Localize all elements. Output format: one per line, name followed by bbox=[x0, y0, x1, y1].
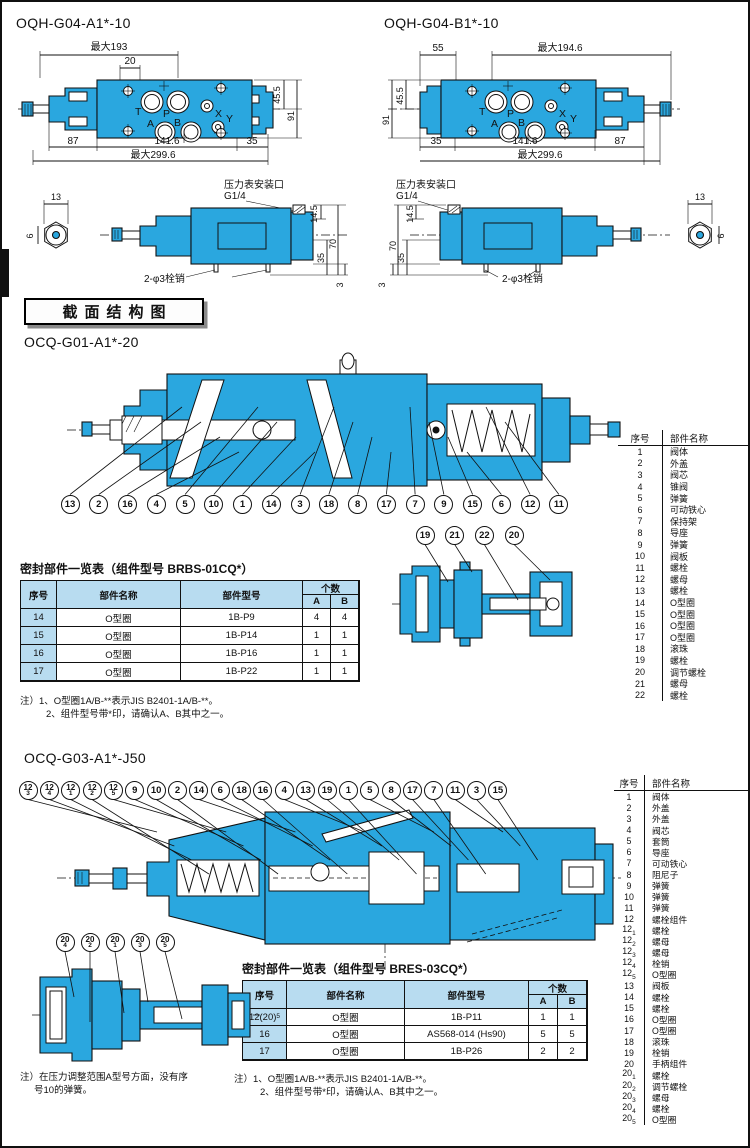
leader-line bbox=[242, 800, 330, 861]
callout-18: 18 bbox=[232, 781, 251, 800]
callout-3: 3 bbox=[291, 495, 310, 514]
parts-row: 14螺栓 bbox=[614, 992, 750, 1003]
model-title-ocq-g03: OCQ-G03-A1*-J50 bbox=[24, 750, 146, 766]
seal-table-g01: 序号部件名称部件型号个数AB14O型圈1B-P94415O型圈1B-P14111… bbox=[20, 580, 360, 682]
parts-row: 10阀板 bbox=[618, 550, 750, 562]
leader-line bbox=[300, 407, 334, 495]
leader-line bbox=[486, 407, 530, 495]
note-line-2: 2、组件型号带*印，请确认A、B其中之一。 bbox=[234, 1087, 443, 1100]
gauge-thread-label: G1/4 bbox=[396, 191, 418, 202]
col-header-qty: 个数 bbox=[303, 581, 359, 595]
leader-line bbox=[514, 545, 550, 581]
callout-8: 8 bbox=[382, 781, 401, 800]
dim-right-outer: 91 bbox=[286, 111, 296, 121]
seal-row-qty-a: 1 bbox=[303, 645, 331, 663]
col-header-qty-b: B bbox=[331, 595, 359, 609]
parts-row: 1阀体 bbox=[618, 446, 750, 458]
dim-top-left: 55 bbox=[432, 43, 444, 54]
dim-total-height: 70 bbox=[328, 239, 338, 249]
callout-12: 12 bbox=[521, 495, 540, 514]
parts-row: 17O型圈 bbox=[614, 1025, 750, 1036]
dim-hex-across: 6 bbox=[25, 233, 35, 238]
parts-row: 2外盖 bbox=[618, 458, 750, 470]
parts-table-header: 序号部件名称 bbox=[614, 775, 750, 791]
callout-11: 11 bbox=[549, 495, 568, 514]
callout-15: 15 bbox=[463, 495, 482, 514]
dim-bot-right: 35 bbox=[246, 136, 258, 147]
leader-line bbox=[140, 952, 148, 1003]
callout-18: 18 bbox=[319, 495, 338, 514]
parts-row: 4阀芯 bbox=[614, 824, 750, 835]
seal-row-name: O型圈 bbox=[57, 627, 181, 645]
parts-table-g03: 序号部件名称1阀体2外盖3外盖4阀芯5套筒6导座7可动铁心8阻尼子9弹簧10弹簧… bbox=[614, 775, 750, 1125]
port-label-x: X bbox=[215, 108, 222, 120]
seal-row-qty-b: 1 bbox=[331, 645, 359, 663]
parts-row: 2外盖 bbox=[614, 802, 750, 813]
parts-row: 16O型圈 bbox=[618, 620, 750, 632]
port-label-t: T bbox=[479, 106, 486, 118]
callout-4: 4 bbox=[275, 781, 294, 800]
parts-row: 3阀芯 bbox=[618, 469, 750, 481]
seal-row-no: 16 bbox=[21, 645, 57, 663]
port-label-p: P bbox=[507, 108, 514, 120]
dim-base-height: 3 bbox=[377, 282, 387, 287]
hex-end-view: 13 6 bbox=[688, 192, 726, 248]
port-label-t: T bbox=[135, 106, 142, 118]
gauge-port-label: 压力表安装口 bbox=[396, 178, 456, 191]
dim-hex-width: 13 bbox=[51, 192, 61, 202]
pin-label: 2-φ3栓销 bbox=[502, 272, 543, 285]
callout-14: 14 bbox=[189, 781, 208, 800]
pin-label: 2-φ3栓销 bbox=[144, 272, 185, 285]
callout-20-1: 201 bbox=[106, 933, 125, 952]
parts-row: 9弹簧 bbox=[614, 880, 750, 891]
port-label-y: Y bbox=[570, 113, 577, 125]
callout-12-3: 123 bbox=[19, 781, 38, 800]
callout-20-3: 203 bbox=[131, 933, 150, 952]
valve-body-side-right bbox=[410, 205, 670, 272]
leader-line bbox=[135, 800, 244, 847]
col-header-model: 部件型号 bbox=[181, 581, 303, 609]
seal-row-name: O型圈 bbox=[57, 663, 181, 681]
col-header-no: 序号 bbox=[21, 581, 57, 609]
seal-row-qty-a: 4 bbox=[303, 609, 331, 627]
leader-line bbox=[348, 800, 416, 875]
dim-bot-max: 最大299.6 bbox=[130, 148, 175, 161]
callout-1: 1 bbox=[233, 495, 252, 514]
parts-row: 9弹簧 bbox=[618, 539, 750, 551]
parts-row: 7保持架 bbox=[618, 516, 750, 528]
parts-row: 7可动铁心 bbox=[614, 858, 750, 869]
leader-line bbox=[178, 800, 279, 875]
leader-line bbox=[455, 800, 503, 833]
gauge-port-label: 压力表安装口 bbox=[224, 178, 284, 191]
callout-17: 17 bbox=[377, 495, 396, 514]
seal-row-qty-b: 4 bbox=[331, 609, 359, 627]
port-label-y: Y bbox=[226, 113, 233, 125]
callout-12-1: 121 bbox=[61, 781, 80, 800]
dim-bot-left: 87 bbox=[67, 136, 79, 147]
leader-line bbox=[477, 800, 521, 847]
leader-line bbox=[484, 545, 518, 601]
catalog-page: OQH-G04-A1*-10 OQH-G04-B1*-10 T P X bbox=[0, 0, 750, 1148]
seal-row-no: 14 bbox=[21, 609, 57, 627]
seal-row-name: O型圈 bbox=[57, 645, 181, 663]
parts-row: 1阀体 bbox=[614, 791, 750, 802]
leader-line bbox=[370, 800, 434, 833]
callout-4: 4 bbox=[147, 495, 166, 514]
callout-7: 7 bbox=[406, 495, 425, 514]
leader-line bbox=[434, 800, 486, 875]
parts-row: 15O型圈 bbox=[618, 608, 750, 620]
leader-line bbox=[448, 437, 473, 495]
leader-line bbox=[65, 952, 74, 998]
leader-line bbox=[156, 800, 261, 861]
callout-20-2: 202 bbox=[81, 933, 100, 952]
dim-port-height: 14.5 bbox=[405, 205, 415, 223]
spring-note-line-1: 注）在压力调整范围A型号方面，没有序 bbox=[20, 1072, 235, 1085]
callout-6: 6 bbox=[211, 781, 230, 800]
dim-hex-across: 6 bbox=[716, 233, 726, 238]
model-title-ocq-g01: OCQ-G01-A1*-20 bbox=[24, 334, 139, 350]
callout-14: 14 bbox=[262, 495, 281, 514]
leader-line bbox=[70, 407, 182, 495]
dim-lower-height: 35 bbox=[316, 253, 326, 263]
col-header-qty-b: B bbox=[558, 995, 587, 1009]
col-header-name: 部件名称 bbox=[287, 981, 405, 1009]
parts-row: 19螺栓 bbox=[618, 655, 750, 667]
parts-row: 8阻尼子 bbox=[614, 869, 750, 880]
leader-line bbox=[386, 452, 391, 495]
parts-row: 12螺母 bbox=[618, 574, 750, 586]
drawing-side-view-right: 压力表安装口 G1/4 13 6 bbox=[380, 178, 740, 298]
note-line-2: 2、组件型号带*印，请确认A、B其中之一。 bbox=[20, 709, 229, 722]
callout-20-4: 204 bbox=[56, 933, 75, 952]
leader-line bbox=[214, 422, 277, 495]
dim-total-height: 70 bbox=[388, 241, 398, 251]
leader-line bbox=[92, 800, 209, 875]
note-line-1: 注）1、O型圈1A/B-**表示JIS B2401-1A/B-**。 bbox=[234, 1074, 443, 1087]
callout-10: 10 bbox=[204, 495, 223, 514]
dim-bot-max: 最大299.6 bbox=[517, 148, 562, 161]
seal-row-qty-a: 5 bbox=[529, 1026, 558, 1043]
dim-bot-right: 87 bbox=[614, 136, 626, 147]
dim-left-inner: 45.5 bbox=[395, 87, 405, 105]
callout-16: 16 bbox=[118, 495, 137, 514]
seal-row-model: 1B-P26 bbox=[405, 1043, 529, 1060]
dim-port-height: 14.5 bbox=[309, 205, 319, 223]
dim-base-height: 3 bbox=[335, 282, 345, 287]
seal-table-notes-g01: 注）1、O型圈1A/B-**表示JIS B2401-1A/B-**。 2、组件型… bbox=[20, 696, 229, 721]
parts-row: 14O型圈 bbox=[618, 597, 750, 609]
callout-2: 2 bbox=[168, 781, 187, 800]
callout-5: 5 bbox=[360, 781, 379, 800]
seal-row-model: 1B-P11 bbox=[405, 1009, 529, 1026]
section-banner: 截面结构图 bbox=[24, 298, 204, 325]
parts-row: 15螺栓 bbox=[614, 1003, 750, 1014]
callout-6: 6 bbox=[492, 495, 511, 514]
spring-note-line-2: 号10的弹簧。 bbox=[20, 1085, 235, 1098]
callout-11: 11 bbox=[446, 781, 465, 800]
dim-left-outer: 91 bbox=[381, 115, 391, 125]
leader-line bbox=[455, 545, 472, 573]
dim-top-max: 最大193 bbox=[91, 40, 128, 53]
callout-20: 20 bbox=[505, 526, 524, 545]
gauge-thread-label: G1/4 bbox=[224, 191, 246, 202]
parts-row: 125O型圈 bbox=[614, 969, 750, 980]
seal-row-model: 1B-P22 bbox=[181, 663, 303, 681]
port-label-b: B bbox=[174, 117, 181, 129]
hex-end-view: 13 6 bbox=[25, 192, 68, 248]
port-label-x: X bbox=[559, 108, 566, 120]
parts-row: 10弹簧 bbox=[614, 891, 750, 902]
page-edge-tab bbox=[2, 249, 9, 297]
callout-3: 3 bbox=[467, 781, 486, 800]
callout-19: 19 bbox=[318, 781, 337, 800]
seal-row-name: O型圈 bbox=[287, 1026, 405, 1043]
seal-row-qty-a: 1 bbox=[303, 627, 331, 645]
parts-table-header: 序号部件名称 bbox=[618, 430, 750, 446]
seal-row-qty-b: 2 bbox=[558, 1043, 587, 1060]
leader-line bbox=[185, 407, 258, 495]
port-label-a: A bbox=[147, 118, 154, 130]
leader-line bbox=[156, 452, 239, 495]
parts-row: 20调节螺栓 bbox=[618, 666, 750, 678]
callout-1: 1 bbox=[339, 781, 358, 800]
seal-row-qty-b: 1 bbox=[331, 663, 359, 681]
parts-row: 22螺栓 bbox=[618, 689, 750, 701]
callout-15: 15 bbox=[488, 781, 507, 800]
parts-row: 3外盖 bbox=[614, 813, 750, 824]
note-line-1: 注）1、O型圈1A/B-**表示JIS B2401-1A/B-**。 bbox=[20, 696, 229, 709]
subassembly-figure-g03: 204202201203205 bbox=[32, 927, 262, 1072]
seal-row-no: 15 bbox=[21, 627, 57, 645]
parts-row: 5弹簧 bbox=[618, 492, 750, 504]
parts-row: 6可动铁心 bbox=[618, 504, 750, 516]
callout-8: 8 bbox=[348, 495, 367, 514]
parts-row: 21螺母 bbox=[618, 678, 750, 690]
leader-line bbox=[425, 545, 448, 583]
dim-bot-mid: 141.6 bbox=[512, 136, 537, 147]
parts-row: 8导座 bbox=[618, 527, 750, 539]
callout-5: 5 bbox=[176, 495, 195, 514]
parts-row: 18滚珠 bbox=[614, 1036, 750, 1047]
seal-row-qty-b: 5 bbox=[558, 1026, 587, 1043]
leader-line bbox=[498, 800, 538, 861]
leader-line bbox=[329, 422, 353, 495]
callout-12-5: 125 bbox=[104, 781, 123, 800]
leader-line bbox=[429, 422, 444, 495]
drawing-side-view-left: 压力表安装口 G1/4 13 6 bbox=[16, 178, 362, 298]
leader-line bbox=[391, 800, 451, 847]
seal-table-title-g01: 密封部件一览表（组件型号 BRBS-01CQ*） bbox=[20, 560, 253, 577]
leader-line bbox=[115, 952, 124, 1014]
model-title-oqh-g04-a1: OQH-G04-A1*-10 bbox=[16, 15, 131, 31]
subassembly-figure-g01: 19212220 bbox=[390, 522, 575, 654]
callout-2: 2 bbox=[89, 495, 108, 514]
leader-line bbox=[165, 952, 182, 1020]
leader-lines-g01 bbox=[52, 352, 622, 516]
callout-13: 13 bbox=[61, 495, 80, 514]
parts-row: 17O型圈 bbox=[618, 632, 750, 644]
dim-bot-left: 35 bbox=[430, 136, 442, 147]
parts-row: 13阀板 bbox=[614, 980, 750, 991]
leader-line bbox=[243, 437, 296, 495]
leader-line bbox=[306, 800, 382, 847]
leader-line bbox=[263, 800, 347, 875]
seal-row-no: 17 bbox=[21, 663, 57, 681]
dim-top-max: 最大194.6 bbox=[537, 41, 582, 54]
seal-row-name: O型圈 bbox=[287, 1043, 405, 1060]
dim-top-offset: 20 bbox=[124, 56, 136, 67]
spring-note-g03: 注）在压力调整范围A型号方面，没有序 号10的弹簧。 bbox=[20, 1072, 235, 1097]
seal-row-name: O型圈 bbox=[57, 609, 181, 627]
parts-row: 4锥阀 bbox=[618, 481, 750, 493]
leader-line bbox=[113, 800, 226, 833]
seal-row-model: 1B-P16 bbox=[181, 645, 303, 663]
callout-17: 17 bbox=[403, 781, 422, 800]
parts-row: 205O型圈 bbox=[614, 1114, 750, 1125]
cross-section-figure-g01: 132164510114318817791561211 bbox=[52, 352, 622, 516]
parts-row: 18滚珠 bbox=[618, 643, 750, 655]
parts-row: 13螺栓 bbox=[618, 585, 750, 597]
callout-20-5: 205 bbox=[156, 933, 175, 952]
callout-10: 10 bbox=[147, 781, 166, 800]
port-label-a: A bbox=[491, 118, 498, 130]
col-header-qty-a: A bbox=[529, 995, 558, 1009]
col-header-qty-a: A bbox=[303, 595, 331, 609]
model-title-oqh-g04-b1: OQH-G04-B1*-10 bbox=[384, 15, 499, 31]
leader-line bbox=[358, 437, 372, 495]
col-header-name: 部件名称 bbox=[57, 581, 181, 609]
drawing-top-view-b1: T P X A B Y 55 最大194.6 45.5 91 35 bbox=[380, 38, 740, 180]
callout-21: 21 bbox=[445, 526, 464, 545]
callout-19: 19 bbox=[416, 526, 435, 545]
callout-9: 9 bbox=[434, 495, 453, 514]
seal-row-qty-a: 1 bbox=[303, 663, 331, 681]
callout-12-2: 122 bbox=[83, 781, 102, 800]
parts-row: 16O型圈 bbox=[614, 1014, 750, 1025]
col-header-qty: 个数 bbox=[529, 981, 587, 995]
dim-right-inner: 45.5 bbox=[272, 86, 282, 104]
leader-line bbox=[71, 800, 192, 861]
port-label-b: B bbox=[518, 117, 525, 129]
seal-row-name: O型圈 bbox=[287, 1009, 405, 1026]
dim-lower-height: 35 bbox=[396, 253, 406, 263]
seal-row-qty-a: 2 bbox=[529, 1043, 558, 1060]
leader-line bbox=[467, 452, 501, 495]
seal-row-qty-b: 1 bbox=[331, 627, 359, 645]
callout-7: 7 bbox=[424, 781, 443, 800]
leader-line bbox=[410, 407, 415, 495]
leader-line bbox=[49, 800, 174, 847]
col-header-model: 部件型号 bbox=[405, 981, 529, 1009]
callout-22: 22 bbox=[475, 526, 494, 545]
leader-line bbox=[505, 422, 559, 495]
seal-row-qty-a: 1 bbox=[529, 1009, 558, 1026]
seal-table-notes-g03: 注）1、O型圈1A/B-**表示JIS B2401-1A/B-**。 2、组件型… bbox=[234, 1074, 443, 1099]
parts-table-g01: 序号部件名称1阀体2外盖3阀芯4锥阀5弹簧6可动铁心7保持架8导座9弹簧10阀板… bbox=[618, 430, 750, 701]
callout-9: 9 bbox=[125, 781, 144, 800]
seal-table-g03: 序号部件名称部件型号个数AB12(20)5O型圈1B-P111116O型圈AS5… bbox=[242, 980, 588, 1061]
dim-hex-width: 13 bbox=[695, 192, 705, 202]
seal-row-qty-b: 1 bbox=[558, 1009, 587, 1026]
seal-row-model: AS568-014 (Hs90) bbox=[405, 1026, 529, 1043]
callout-16: 16 bbox=[253, 781, 272, 800]
callout-13: 13 bbox=[296, 781, 315, 800]
port-label-p: P bbox=[163, 108, 170, 120]
seal-row-model: 1B-P9 bbox=[181, 609, 303, 627]
callout-12-4: 124 bbox=[40, 781, 59, 800]
parts-row: 11螺栓 bbox=[618, 562, 750, 574]
section-banner-label: 截面结构图 bbox=[62, 301, 172, 322]
parts-row: 5套筒 bbox=[614, 836, 750, 847]
drawing-top-view-a1: T P X A B Y 最大193 20 45.5 91 87 bbox=[16, 38, 362, 180]
dim-bot-mid: 141.6 bbox=[154, 136, 179, 147]
seal-row-model: 1B-P14 bbox=[181, 627, 303, 645]
